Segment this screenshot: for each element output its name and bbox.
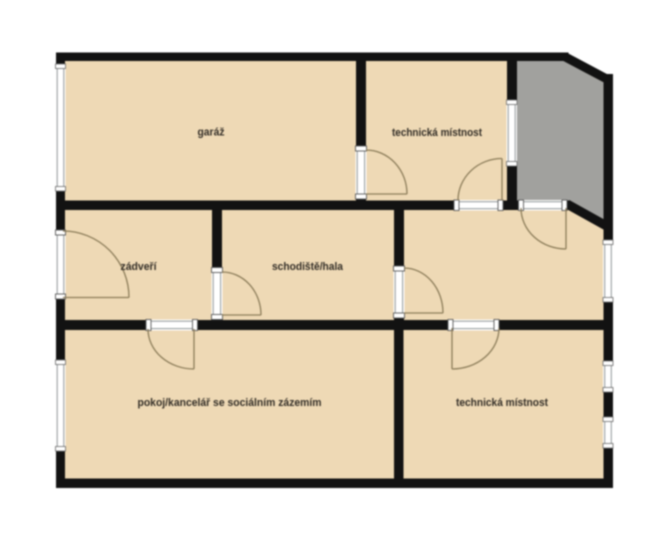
svg-text:garáž: garáž <box>198 127 225 139</box>
svg-text:technická místnost: technická místnost <box>456 397 548 409</box>
svg-text:schodiště/hala: schodiště/hala <box>272 261 344 273</box>
svg-text:zádveří: zádveří <box>121 261 158 273</box>
svg-text:pokoj/kancelář se sociálním zá: pokoj/kancelář se sociálním zázemím <box>138 397 322 409</box>
svg-text:technická místnost: technická místnost <box>392 127 482 139</box>
